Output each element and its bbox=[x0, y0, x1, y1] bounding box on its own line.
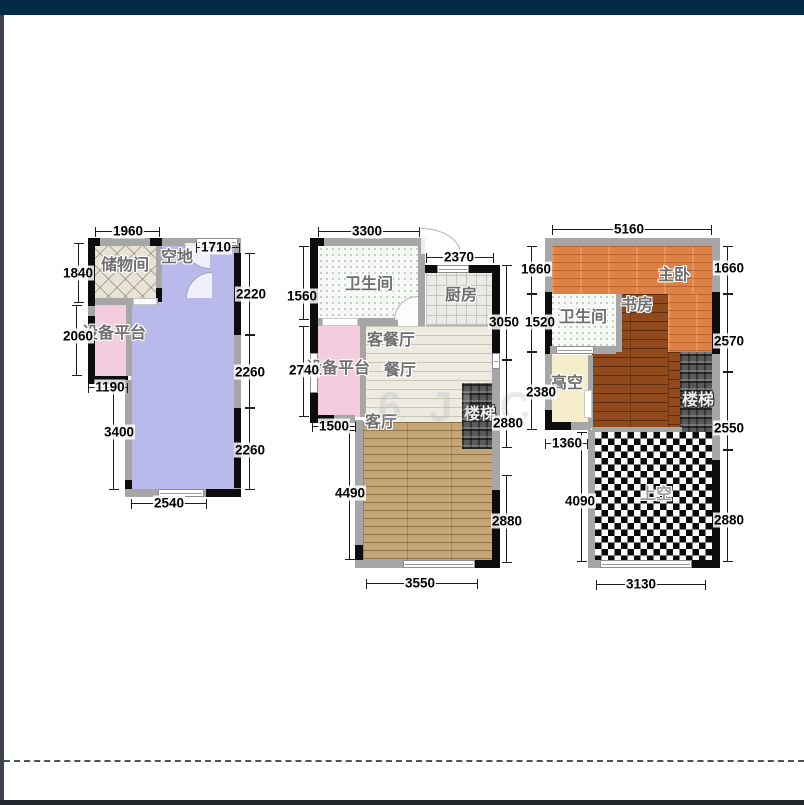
left-edge-strip bbox=[0, 15, 4, 800]
room-label-stairs: 楼梯 bbox=[682, 386, 714, 410]
dim-1500: 1500 bbox=[318, 419, 350, 434]
door-gap bbox=[133, 298, 157, 305]
dim-2880: 2880 bbox=[713, 513, 745, 528]
wall-segment bbox=[425, 265, 437, 273]
dim-1660-right: 1660 bbox=[713, 261, 745, 276]
dim-3550: 3550 bbox=[404, 576, 436, 591]
room-label-void-above: 上空 bbox=[640, 480, 672, 504]
dim-5160: 5160 bbox=[613, 222, 645, 237]
dim-2370: 2370 bbox=[443, 250, 475, 265]
room-label-bathroom: 卫生间 bbox=[559, 303, 607, 327]
dim-4490: 4490 bbox=[334, 486, 366, 501]
room-label-open-area: 空地 bbox=[161, 243, 193, 267]
room-open-area-floor-main bbox=[131, 303, 234, 491]
dim-2260-upper: 2260 bbox=[234, 365, 266, 380]
dim-2260-lower: 2260 bbox=[234, 443, 266, 458]
room-label-storage: 储物间 bbox=[101, 251, 149, 275]
dim-1660-left: 1660 bbox=[520, 262, 552, 277]
wall-segment bbox=[312, 238, 424, 246]
dim-3130: 3130 bbox=[625, 577, 657, 592]
door-gap bbox=[584, 390, 592, 418]
dim-1960: 1960 bbox=[112, 224, 144, 239]
room-label-living-dining: 客餐厅 bbox=[367, 326, 415, 350]
window bbox=[556, 346, 594, 354]
dim-line bbox=[727, 372, 728, 450]
wall-segment bbox=[492, 490, 500, 568]
dim-2060: 2060 bbox=[62, 329, 94, 344]
dim-4090: 4090 bbox=[564, 494, 596, 509]
door-gap bbox=[322, 318, 358, 326]
dim-2570: 2570 bbox=[713, 334, 745, 349]
room-label-bathroom: 卫生间 bbox=[345, 270, 393, 294]
dim-line bbox=[727, 450, 728, 562]
wall-segment bbox=[88, 306, 95, 316]
top-bar bbox=[0, 0, 804, 15]
window bbox=[403, 560, 475, 568]
dim-2220: 2220 bbox=[235, 287, 267, 302]
bottom-bar bbox=[0, 800, 804, 805]
dim-line bbox=[506, 265, 507, 360]
dim-1560: 1560 bbox=[286, 289, 318, 304]
room-label-dining: 餐厅 bbox=[384, 356, 416, 380]
window bbox=[600, 560, 692, 568]
dim-line bbox=[506, 360, 507, 448]
dim-1520: 1520 bbox=[524, 315, 556, 330]
dim-2880-upper: 2880 bbox=[492, 416, 524, 431]
floor-edge bbox=[426, 324, 494, 326]
wall-segment bbox=[692, 560, 720, 568]
window bbox=[492, 353, 500, 369]
dim-3300: 3300 bbox=[351, 224, 383, 239]
dim-2880-lower: 2880 bbox=[491, 514, 523, 529]
dim-line bbox=[303, 246, 304, 320]
floorplan-canvas: 6 JI C 储物间 空地 设备平台 bbox=[0, 0, 804, 805]
wall-segment bbox=[545, 238, 720, 246]
dim-1360: 1360 bbox=[551, 436, 583, 451]
dim-2540: 2540 bbox=[153, 496, 185, 511]
wall-segment bbox=[592, 427, 682, 432]
dim-1840: 1840 bbox=[62, 266, 94, 281]
wall-segment bbox=[492, 265, 500, 353]
dim-2380: 2380 bbox=[525, 385, 557, 400]
dim-3050: 3050 bbox=[488, 315, 520, 330]
dim-2550: 2550 bbox=[713, 421, 745, 436]
room-label-study: 书房 bbox=[621, 291, 653, 315]
room-label-master-bedroom: 主卧 bbox=[658, 261, 690, 285]
dim-2740: 2740 bbox=[288, 363, 320, 378]
window bbox=[437, 265, 469, 273]
bottom-dashed-line bbox=[4, 760, 804, 762]
dim-3400: 3400 bbox=[103, 425, 135, 440]
room-master-bedroom-floor-column bbox=[668, 294, 712, 352]
wall-segment bbox=[475, 560, 500, 568]
dim-1710: 1710 bbox=[200, 240, 232, 255]
dim-1190: 1190 bbox=[94, 380, 125, 395]
wall-segment bbox=[206, 489, 241, 497]
room-label-kitchen: 厨房 bbox=[445, 281, 477, 305]
